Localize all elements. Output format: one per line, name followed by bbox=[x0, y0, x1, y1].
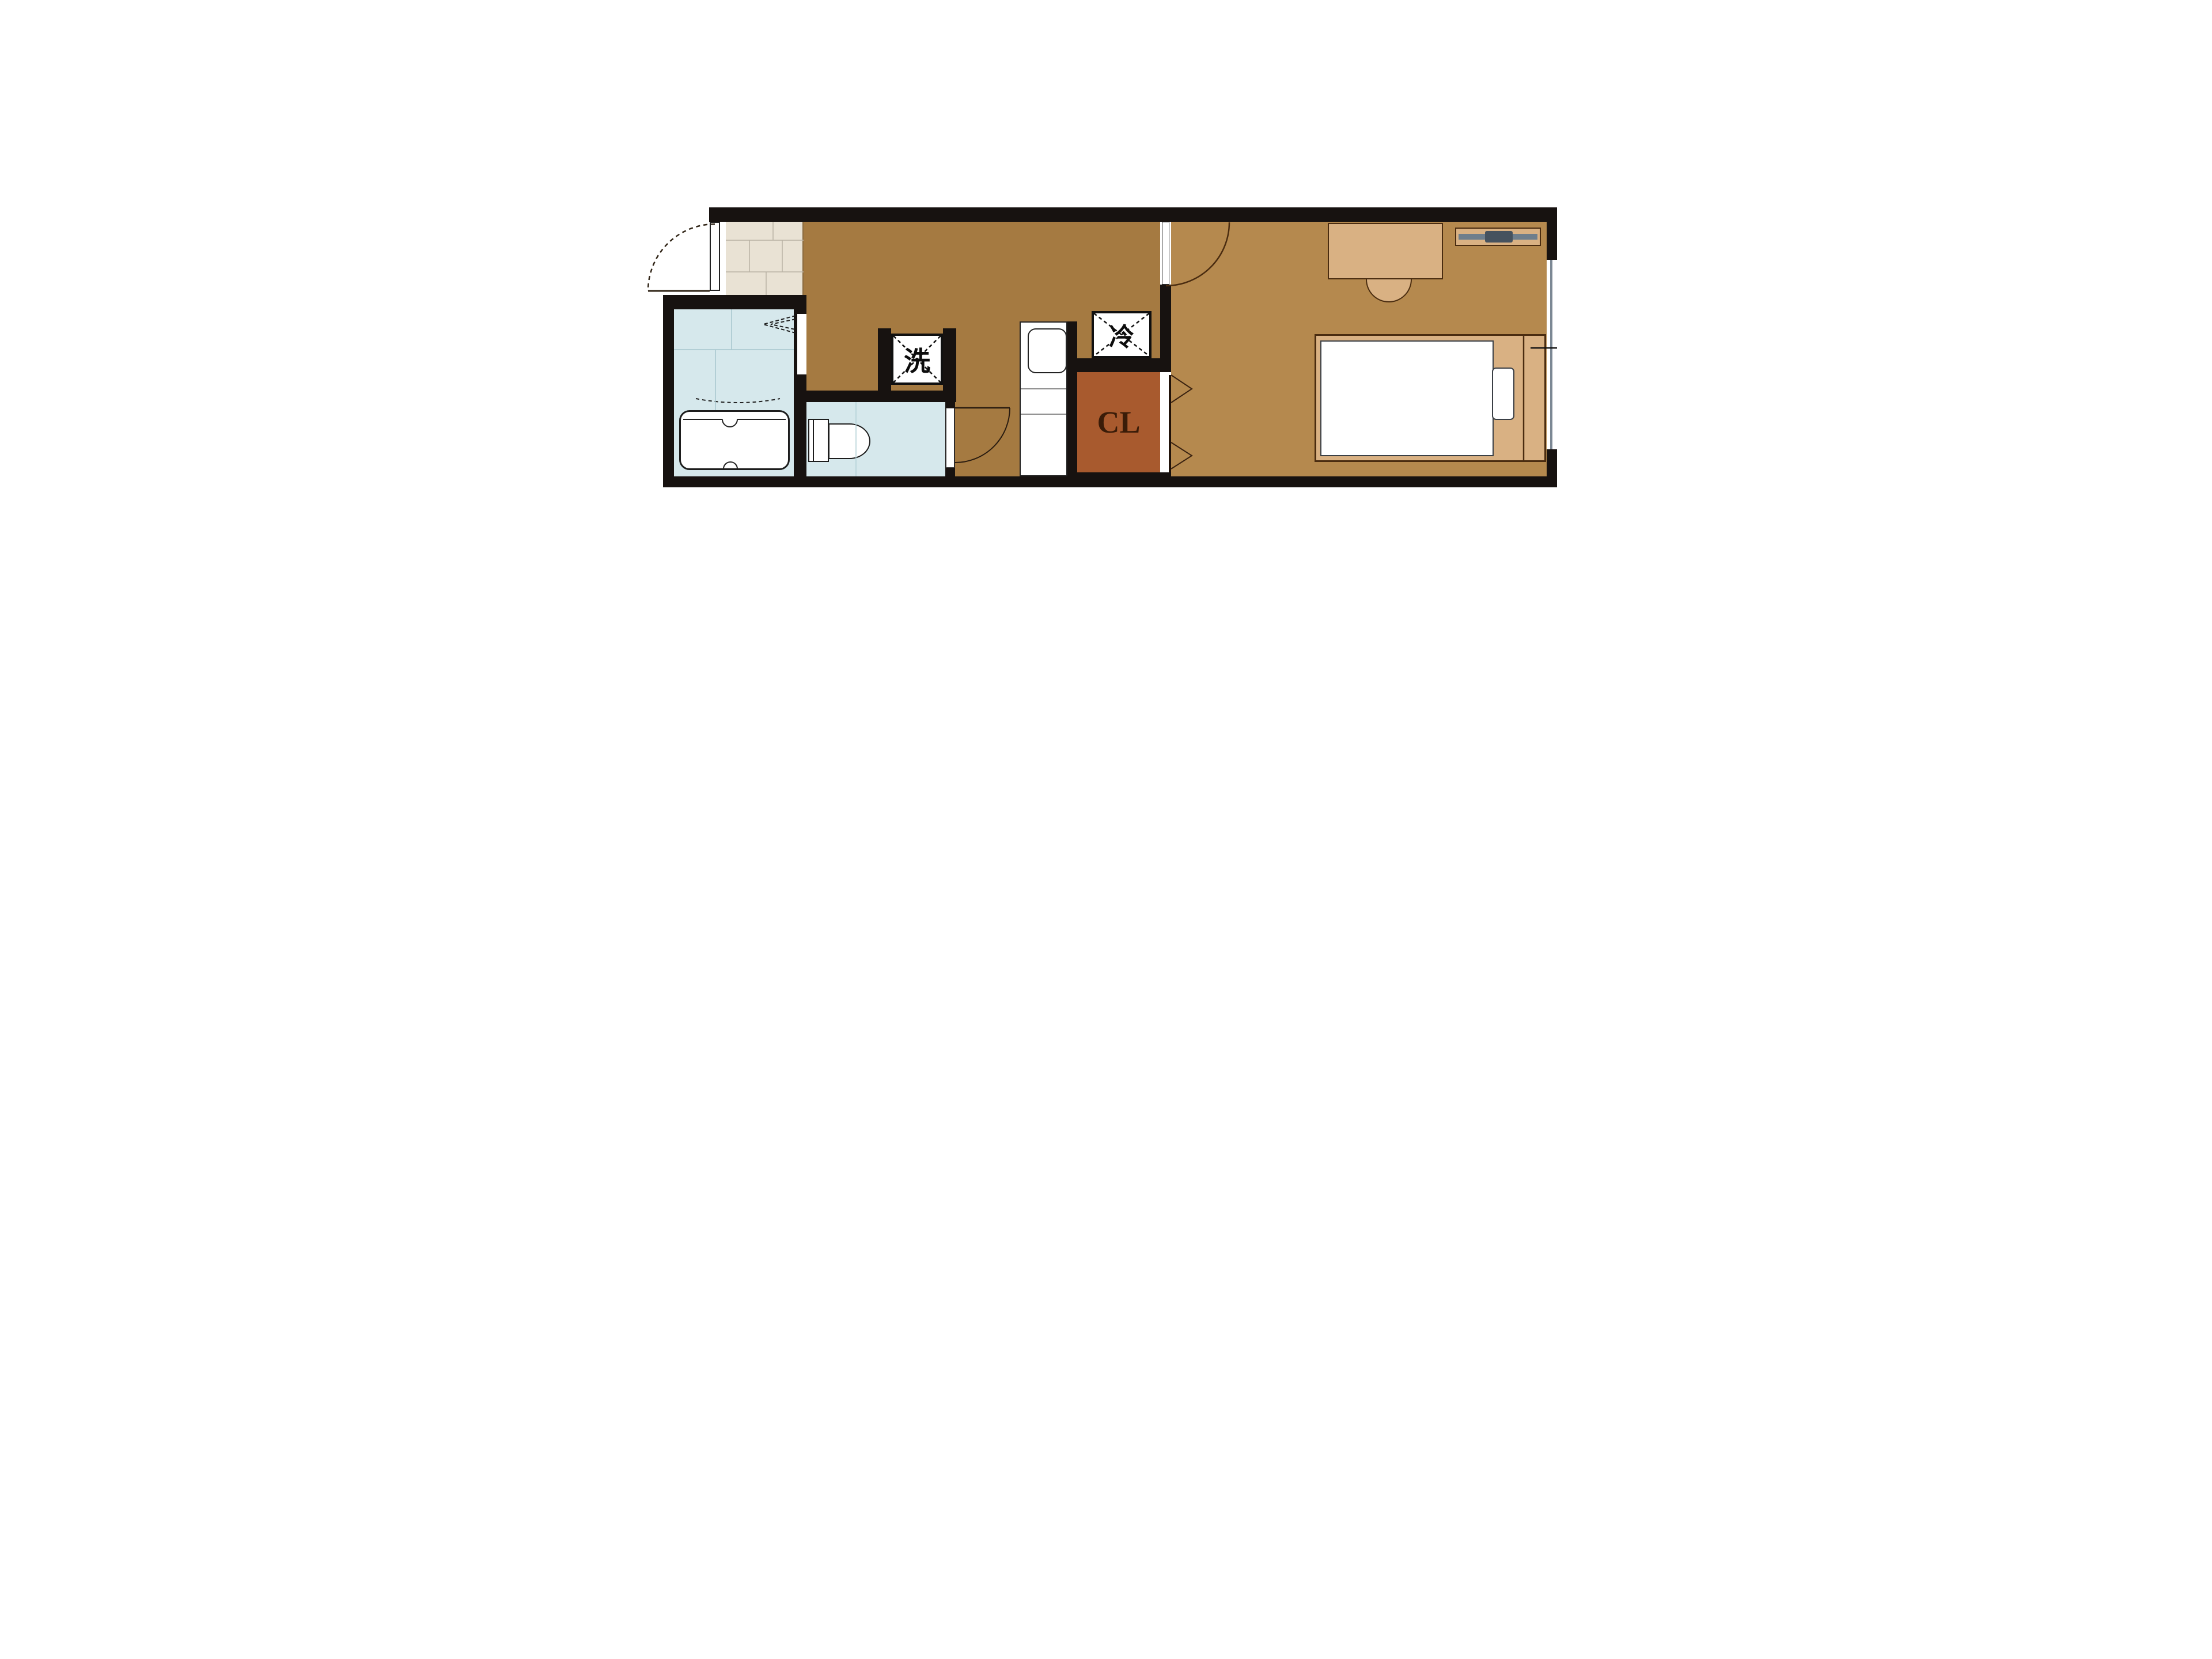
floor-plan: 洗 冷 CL bbox=[645, 0, 1567, 691]
desk bbox=[1328, 223, 1443, 279]
entry-tile-floor bbox=[726, 222, 804, 295]
wall-left bbox=[663, 295, 674, 487]
bathtub bbox=[679, 410, 790, 470]
wall-under-fridge bbox=[1077, 358, 1160, 372]
toilet-door bbox=[946, 408, 955, 468]
bathroom-folding-door bbox=[797, 314, 806, 374]
wall-bottom bbox=[663, 476, 1557, 487]
wall-closet-bottom bbox=[1077, 472, 1160, 476]
toilet-tank bbox=[808, 419, 829, 462]
mattress bbox=[1320, 340, 1494, 456]
closet-label: CL bbox=[1077, 372, 1160, 472]
wall-washer-left bbox=[878, 328, 891, 402]
washer-label-text: 洗 bbox=[904, 340, 930, 378]
wall-divider-lower bbox=[1160, 472, 1171, 487]
wall-washer-right bbox=[943, 328, 956, 402]
toilet-bowl bbox=[828, 423, 870, 459]
fridge-label: 冷 bbox=[1092, 311, 1152, 358]
tv-screen bbox=[1485, 231, 1513, 243]
bedroom-door bbox=[1162, 222, 1169, 285]
fridge-label-text: 冷 bbox=[1109, 316, 1134, 353]
kitchen-sink bbox=[1028, 328, 1067, 373]
wall-top bbox=[709, 207, 1557, 222]
closet-folding-door bbox=[1160, 375, 1171, 472]
entrance-door bbox=[710, 222, 720, 291]
window-glass-line bbox=[1550, 260, 1552, 449]
entrance-door-swing-arc bbox=[648, 224, 715, 291]
wall-toilet-top bbox=[794, 391, 955, 402]
wall-divider-upper bbox=[1160, 285, 1171, 372]
wall-counter-right bbox=[1067, 321, 1077, 476]
wall-bathroom-top bbox=[663, 295, 804, 309]
pillow bbox=[1492, 368, 1514, 420]
closet-label-text: CL bbox=[1097, 404, 1140, 440]
washer-label: 洗 bbox=[891, 334, 943, 385]
